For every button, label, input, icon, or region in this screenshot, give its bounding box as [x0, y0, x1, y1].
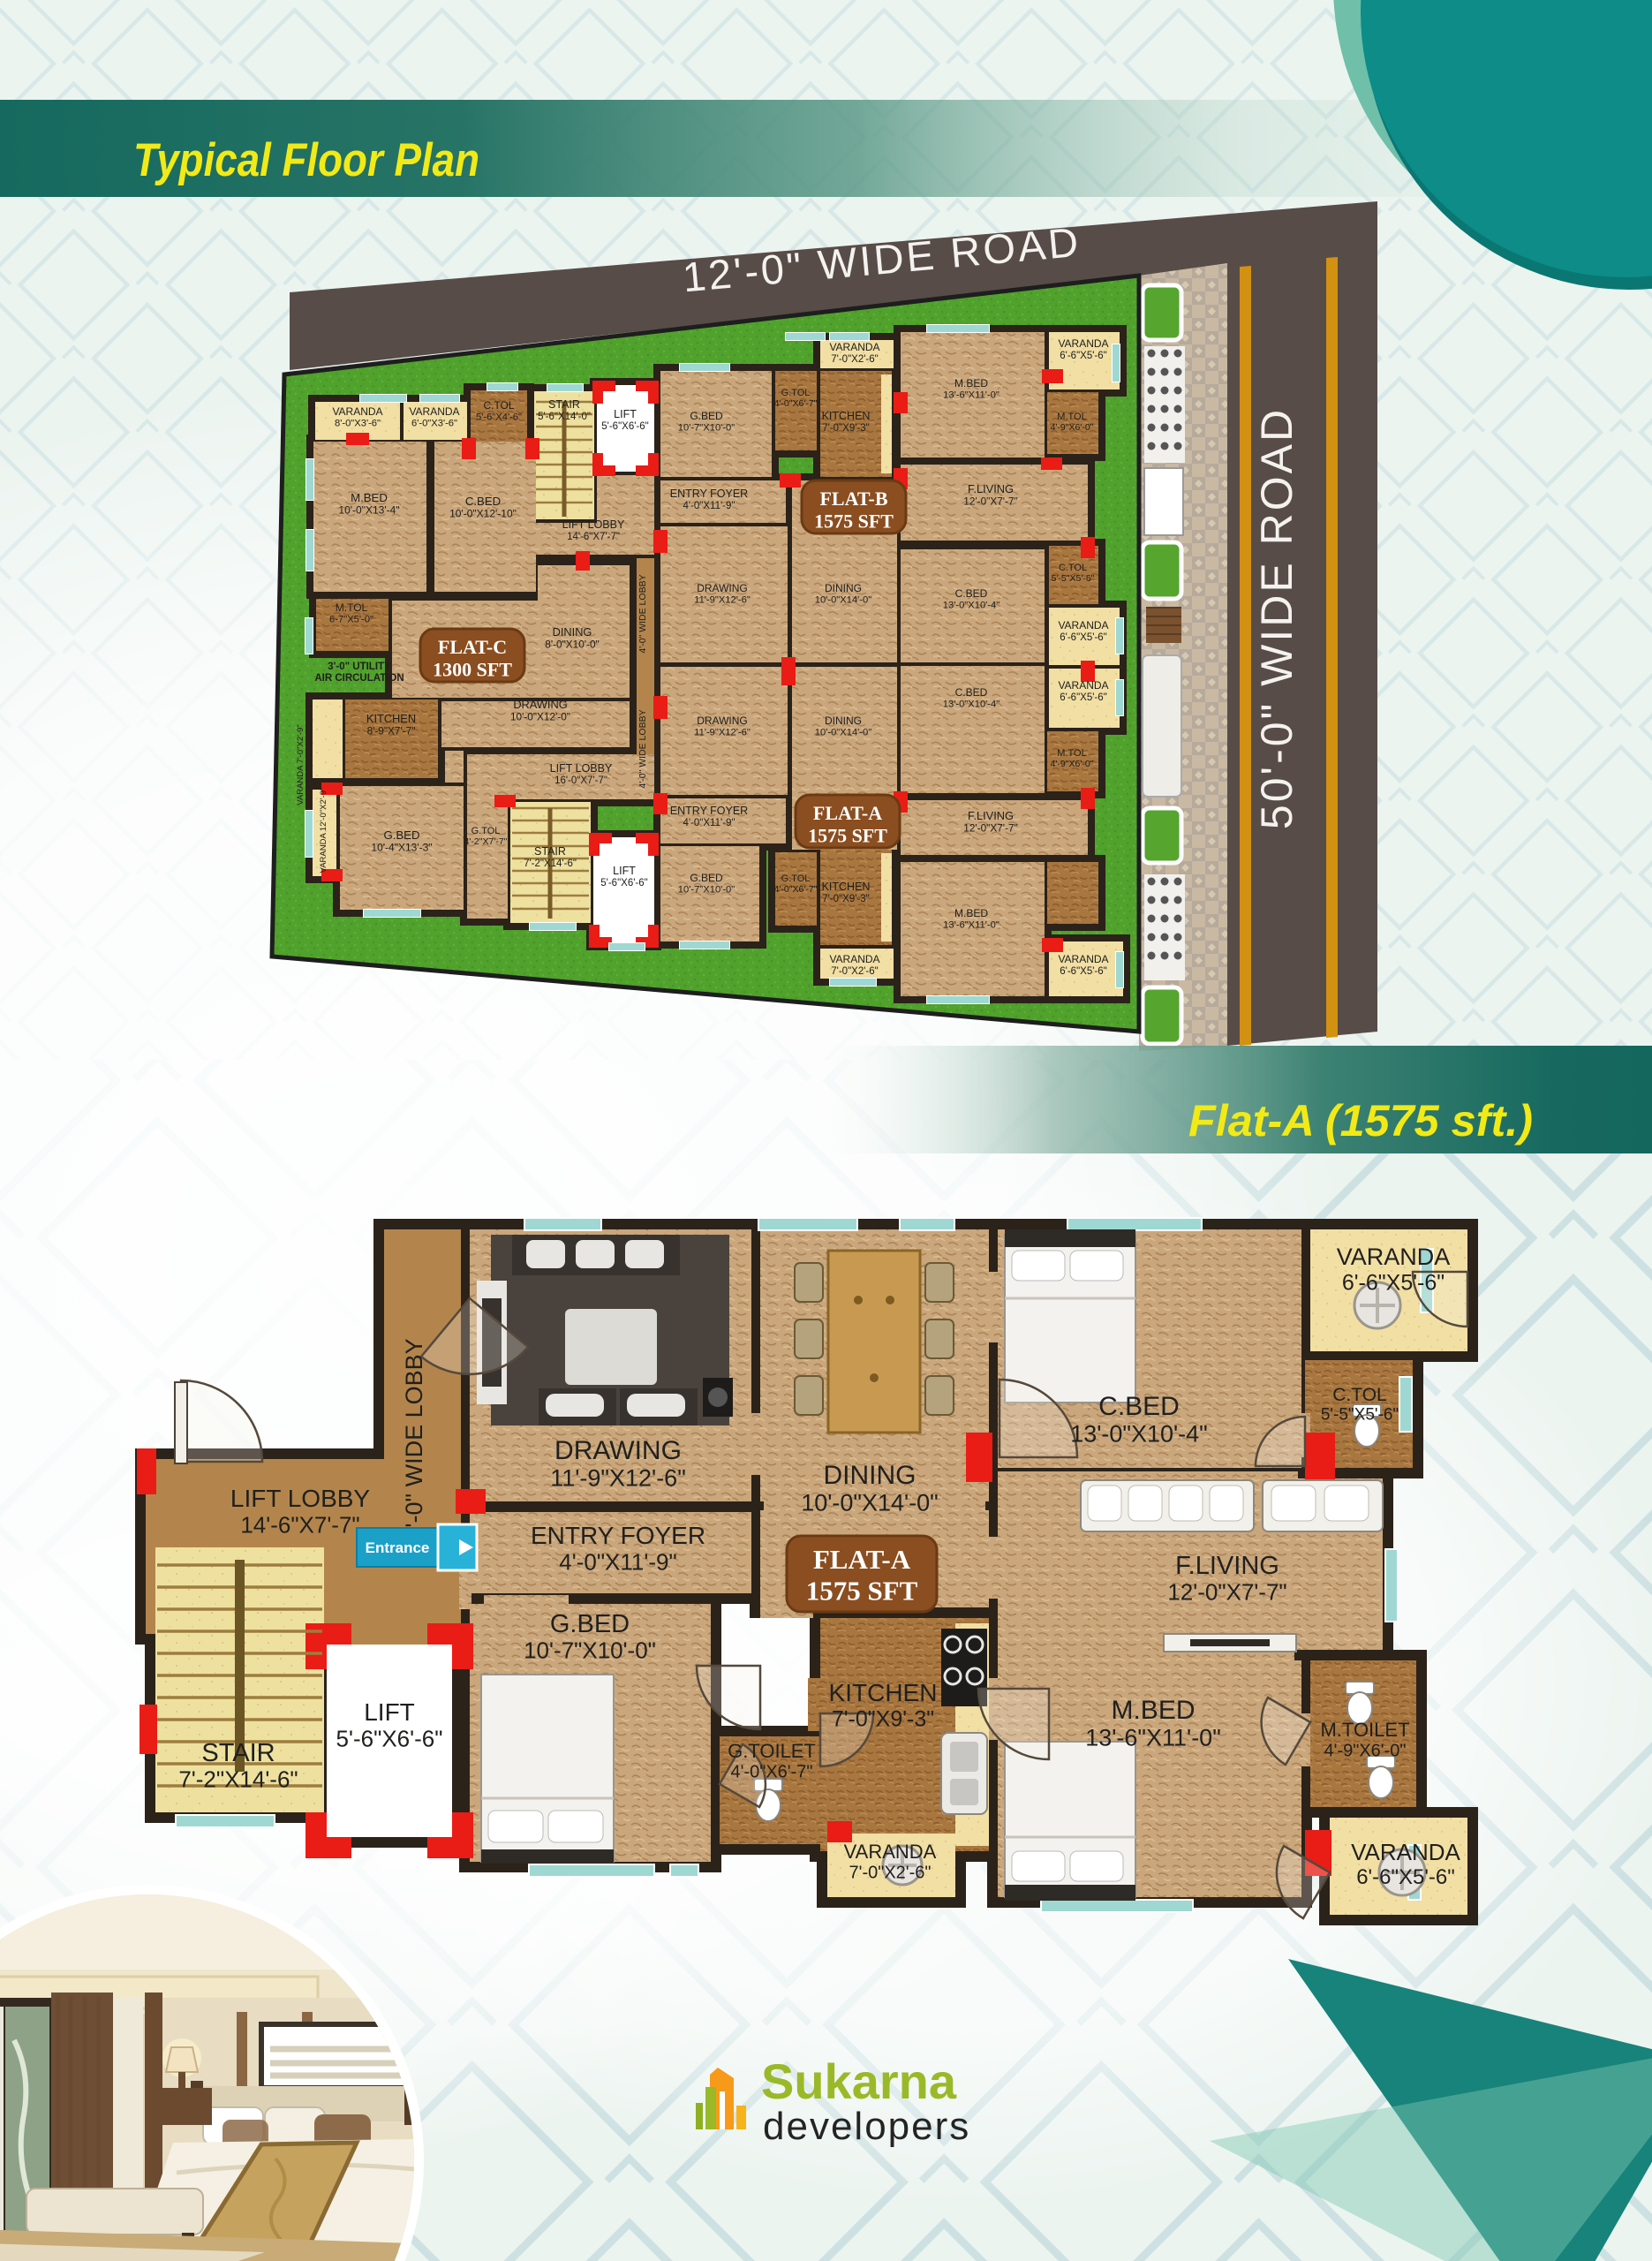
svg-text:G.TOILET4'-0"X6'-7": G.TOILET4'-0"X6'-7"	[728, 1740, 816, 1782]
svg-text:VARANDA6'-0"X3'-6": VARANDA6'-0"X3'-6"	[409, 405, 459, 429]
svg-text:FLAT-C1300 SFT: FLAT-C1300 SFT	[433, 636, 512, 680]
svg-text:VARANDA7'-0"X2'-6": VARANDA7'-0"X2'-6"	[844, 1841, 937, 1883]
svg-text:F.LIVING12'-0"X7'-7": F.LIVING12'-0"X7'-7"	[963, 482, 1017, 507]
svg-text:KITCHEN7'-0"X9'-3": KITCHEN7'-0"X9'-3"	[829, 1679, 938, 1731]
svg-text:FLAT-A1575 SFT: FLAT-A1575 SFT	[806, 1544, 918, 1607]
svg-text:VARANDA7'-0"X2'-6": VARANDA7'-0"X2'-6"	[829, 953, 879, 977]
svg-text:VARANDA6'-6"X5'-6": VARANDA6'-6"X5'-6"	[1058, 619, 1108, 643]
svg-text:4'-0" WIDE LOBBY: 4'-0" WIDE LOBBY	[637, 574, 648, 653]
svg-text:Entrance: Entrance	[366, 1539, 430, 1556]
svg-text:LIFT LOBBY14'-6"X7'-7": LIFT LOBBY14'-6"X7'-7"	[230, 1485, 371, 1538]
svg-text:VARANDA6'-6"X5'-6": VARANDA6'-6"X5'-6"	[1058, 953, 1108, 977]
svg-text:Typical Floor Plan: Typical Floor Plan	[133, 134, 479, 186]
svg-text:VARANDA6'-6"X5'-6": VARANDA6'-6"X5'-6"	[1058, 337, 1108, 361]
svg-text:50'-0" WIDE ROAD: 50'-0" WIDE ROAD	[1252, 407, 1301, 829]
svg-text:FLAT-B1575 SFT: FLAT-B1575 SFT	[814, 488, 894, 532]
svg-text:M.TOL6-7"X5'-0": M.TOL6-7"X5'-0"	[329, 601, 373, 625]
svg-text:DINING8'-0"X10'-0": DINING8'-0"X10'-0"	[545, 625, 599, 650]
svg-text:M.TOILET4'-9"X6'-0": M.TOILET4'-9"X6'-0"	[1320, 1719, 1409, 1761]
svg-text:LIFT LOBBY14'-6"X7'-7": LIFT LOBBY14'-6"X7'-7"	[562, 518, 625, 542]
svg-text:F.LIVING12'-0"X7'-7": F.LIVING12'-0"X7'-7"	[1167, 1552, 1286, 1605]
svg-text:VARANDA 7'-0"X2'-9": VARANDA 7'-0"X2'-9"	[296, 724, 306, 805]
svg-text:VARANDA6'-6"X5'-6": VARANDA6'-6"X5'-6"	[1351, 1839, 1460, 1889]
svg-text:VARANDA7'-0"X2'-6": VARANDA7'-0"X2'-6"	[829, 341, 879, 365]
svg-text:DRAWING11'-9"X12'-6": DRAWING11'-9"X12'-6"	[550, 1436, 686, 1492]
svg-text:KITCHEN7'-0"X9'-3": KITCHEN7'-0"X9'-3"	[822, 410, 871, 434]
svg-text:KITCHEN7'-0"X9'-3": KITCHEN7'-0"X9'-3"	[822, 881, 871, 904]
svg-text:VARANDA6'-6"X5'-6": VARANDA6'-6"X5'-6"	[1337, 1244, 1451, 1295]
svg-text:Sukarna: Sukarna	[761, 2053, 957, 2109]
svg-text:DRAWING10'-0"X12'-0": DRAWING10'-0"X12'-0"	[510, 698, 570, 722]
svg-text:DRAWING11'-9"X12'-6": DRAWING11'-9"X12'-6"	[694, 715, 751, 738]
svg-text:Flat-A (1575 sft.): Flat-A (1575 sft.)	[1188, 1096, 1533, 1146]
svg-text:developers: developers	[763, 2105, 970, 2148]
svg-text:4'-0" WIDE LOBBY: 4'-0" WIDE LOBBY	[401, 1338, 427, 1540]
svg-text:DRAWING11'-9"X12'-6": DRAWING11'-9"X12'-6"	[694, 582, 751, 606]
svg-text:VARANDA 12'-0"X2'-9": VARANDA 12'-0"X2'-9"	[319, 788, 328, 873]
svg-text:4'-0" WIDE LOBBY: 4'-0" WIDE LOBBY	[637, 709, 648, 788]
svg-text:VARANDA6'-6"X5'-6": VARANDA6'-6"X5'-6"	[1058, 679, 1108, 703]
svg-text:LIFT LOBBY16'-0"X7'-7": LIFT LOBBY16'-0"X7'-7"	[550, 762, 613, 786]
svg-text:KITCHEN8'-9"X7'-7": KITCHEN8'-9"X7'-7"	[366, 712, 416, 737]
svg-text:VARANDA8'-0"X3'-6": VARANDA8'-0"X3'-6"	[332, 405, 382, 429]
svg-text:FLAT-A1575 SFT: FLAT-A1575 SFT	[808, 802, 887, 846]
svg-text:3'-0" UTILITYAIR CIRCULATION: 3'-0" UTILITYAIR CIRCULATION	[314, 662, 404, 684]
svg-text:F.LIVING12'-0"X7'-7": F.LIVING12'-0"X7'-7"	[963, 809, 1017, 834]
